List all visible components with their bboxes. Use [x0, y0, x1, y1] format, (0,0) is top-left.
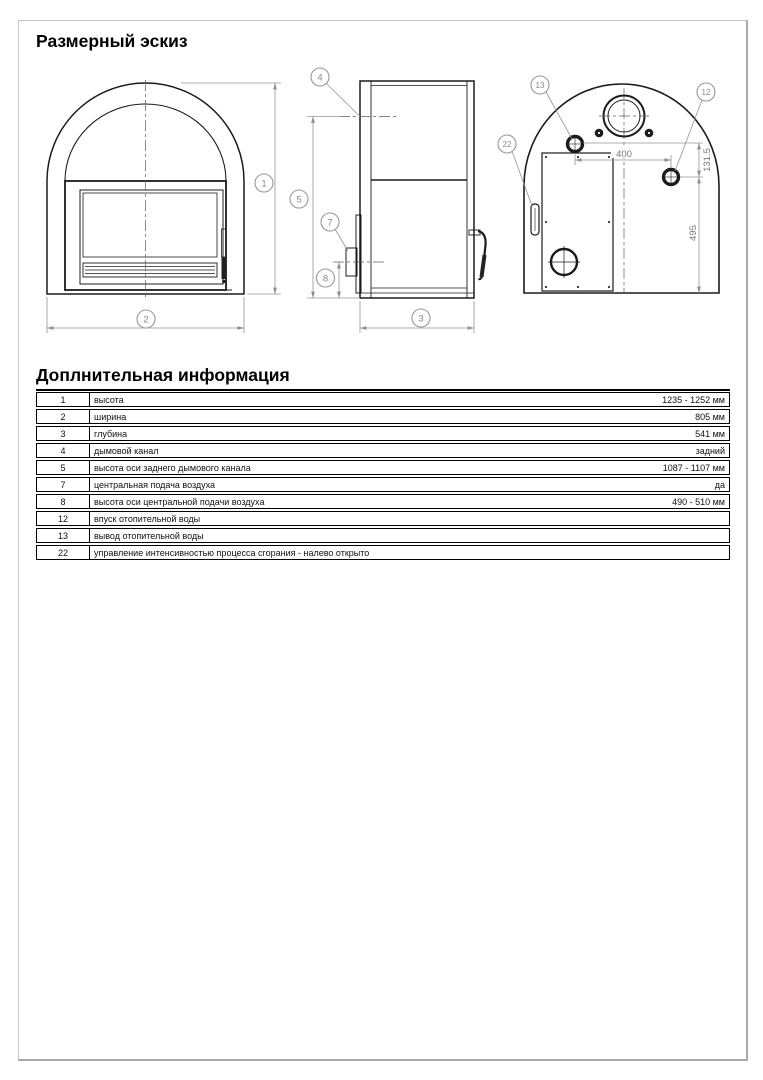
row-number: 5: [37, 461, 90, 474]
row-label: впуск отопительной воды: [94, 514, 200, 524]
row-label: ширина: [94, 412, 126, 422]
svg-text:2: 2: [143, 315, 148, 326]
table-row: 22 управление интенсивностью процесса сг…: [36, 545, 730, 560]
side-view: 4 5 7 8: [290, 68, 486, 333]
table-row: 7 центральная подача воздухада: [36, 477, 730, 492]
row-number: 3: [37, 427, 90, 440]
row-label: центральная подача воздуха: [94, 480, 215, 490]
row-number: 4: [37, 444, 90, 457]
table-row: 8 высота оси центральной подачи воздуха4…: [36, 494, 730, 509]
dimension-width: 2: [47, 297, 244, 333]
svg-text:8: 8: [323, 274, 328, 285]
table-row: 13 вывод отопительной воды: [36, 528, 730, 543]
row-number: 8: [37, 495, 90, 508]
table-row: 12 впуск отопительной воды: [36, 511, 730, 526]
callout-water-outlet: 13: [531, 76, 572, 139]
row-label: дымовой канал: [94, 446, 159, 456]
row-value: задний: [696, 446, 725, 456]
svg-text:495: 495: [688, 225, 699, 241]
rear-view: 13 12 22 400: [498, 76, 719, 293]
svg-text:22: 22: [503, 140, 512, 149]
combustion-control-handle: [531, 204, 539, 235]
dimension-air-axis-height: 8: [317, 262, 340, 298]
table-row: 1 высота1235 - 1252 мм: [36, 392, 730, 407]
callout-flue: 4: [311, 68, 360, 117]
row-value: 490 - 510 мм: [672, 497, 725, 507]
dimension-131-5: 131.5: [680, 143, 713, 177]
svg-text:3: 3: [418, 314, 423, 325]
row-value: 541 мм: [695, 429, 725, 439]
side-handle: [469, 230, 486, 279]
svg-text:1: 1: [261, 179, 266, 190]
front-view: 1 2: [47, 80, 281, 333]
section-title-additional-info: Доплнительная информация: [36, 365, 290, 386]
door-glass: [83, 193, 217, 257]
row-number: 7: [37, 478, 90, 491]
row-value: 805 мм: [695, 412, 725, 422]
svg-text:131.5: 131.5: [702, 148, 713, 172]
row-label: высота оси центральной подачи воздуха: [94, 497, 264, 507]
row-number: 2: [37, 410, 90, 423]
vent-grille: [83, 263, 217, 277]
row-number: 1: [37, 393, 90, 406]
table-row: 4 дымовой каналзадний: [36, 443, 730, 458]
row-number: 12: [37, 512, 90, 525]
row-value: 1087 - 1107 мм: [663, 463, 725, 473]
table-row: 3 глубина541 мм: [36, 426, 730, 441]
svg-text:7: 7: [327, 218, 332, 229]
document-page: Размерный эскиз: [18, 20, 748, 1061]
row-value: да: [715, 480, 725, 490]
row-label: высота оси заднего дымового канала: [94, 463, 251, 473]
table-row: 5 высота оси заднего дымового канала1087…: [36, 460, 730, 475]
row-number: 22: [37, 546, 90, 559]
svg-text:400: 400: [616, 149, 632, 160]
svg-text:4: 4: [317, 73, 322, 84]
spec-table: 1 высота1235 - 1252 мм 2 ширина805 мм 3 …: [36, 392, 730, 562]
svg-text:13: 13: [536, 81, 545, 90]
row-label: управление интенсивностью процесса сгора…: [94, 548, 369, 558]
callout-air-supply: 7: [321, 213, 348, 251]
air-inlet-stub: [333, 215, 385, 293]
svg-text:12: 12: [702, 88, 711, 97]
heading-rule: [36, 389, 730, 391]
table-row: 2 ширина805 мм: [36, 409, 730, 424]
dimension-height: 1: [181, 83, 281, 294]
dimensional-drawing: 1 2: [19, 61, 747, 361]
row-label: вывод отопительной воды: [94, 531, 204, 541]
rear-panel: [542, 153, 613, 291]
dimension-495: 495: [688, 177, 699, 293]
callout-combustion-control: 22: [498, 135, 532, 206]
dimension-depth: 3: [360, 301, 474, 333]
svg-text:5: 5: [296, 195, 301, 206]
row-value: 1235 - 1252 мм: [662, 395, 725, 405]
row-label: высота: [94, 395, 124, 405]
page-title: Размерный эскиз: [36, 31, 188, 52]
row-label: глубина: [94, 429, 127, 439]
row-number: 13: [37, 529, 90, 542]
